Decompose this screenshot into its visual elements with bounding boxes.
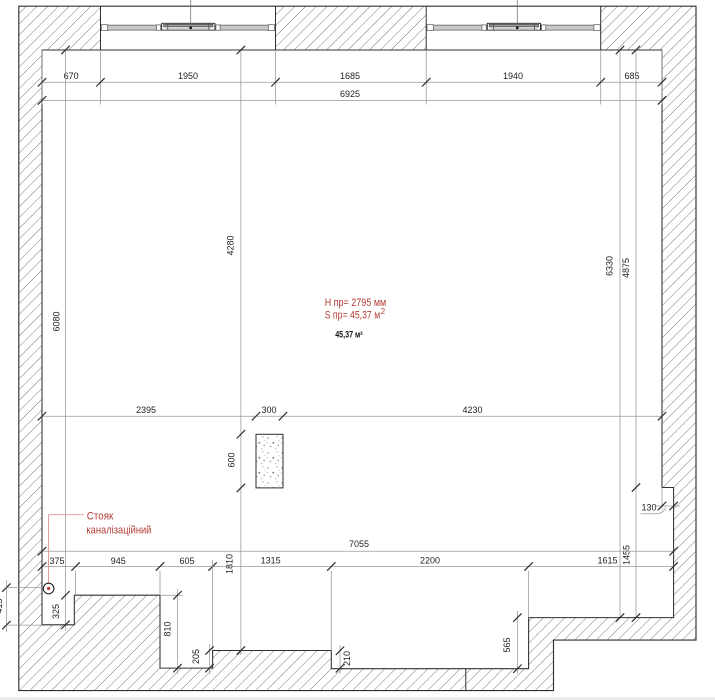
- svg-text:1315: 1315: [261, 555, 281, 565]
- svg-text:2: 2: [381, 307, 385, 316]
- svg-text:810: 810: [162, 621, 172, 636]
- svg-text:415: 415: [0, 598, 4, 613]
- svg-text:605: 605: [179, 556, 194, 566]
- svg-text:565: 565: [502, 637, 512, 652]
- svg-text:325: 325: [51, 604, 61, 619]
- svg-text:4230: 4230: [462, 405, 482, 415]
- svg-text:600: 600: [227, 452, 237, 467]
- svg-text:670: 670: [64, 71, 79, 81]
- svg-text:205: 205: [191, 649, 201, 664]
- svg-text:6925: 6925: [340, 89, 360, 99]
- svg-text:S пр= 45,37 м: S пр= 45,37 м: [325, 310, 381, 322]
- svg-text:945: 945: [111, 556, 126, 566]
- svg-text:685: 685: [624, 71, 639, 81]
- svg-text:45,37 м²: 45,37 м²: [335, 329, 363, 339]
- svg-text:Стояк: Стояк: [87, 511, 114, 523]
- svg-text:300: 300: [261, 405, 276, 415]
- svg-text:1685: 1685: [340, 71, 360, 81]
- svg-text:210: 210: [342, 651, 352, 666]
- svg-text:1455: 1455: [621, 545, 631, 565]
- svg-text:7055: 7055: [349, 539, 369, 549]
- svg-text:Н пр= 2795 мм: Н пр= 2795 мм: [325, 297, 387, 309]
- svg-text:4875: 4875: [621, 258, 631, 278]
- svg-text:1615: 1615: [597, 555, 617, 565]
- svg-text:6330: 6330: [605, 256, 615, 276]
- svg-text:каналізаційний: каналізаційний: [86, 524, 151, 536]
- svg-text:1950: 1950: [178, 71, 198, 81]
- svg-text:6080: 6080: [52, 311, 62, 331]
- svg-text:375: 375: [49, 556, 64, 566]
- svg-text:130: 130: [641, 503, 656, 513]
- svg-text:1940: 1940: [503, 71, 523, 81]
- svg-text:2200: 2200: [420, 555, 440, 565]
- svg-text:2395: 2395: [136, 405, 156, 415]
- svg-text:1810: 1810: [225, 554, 235, 574]
- svg-text:4280: 4280: [225, 235, 235, 255]
